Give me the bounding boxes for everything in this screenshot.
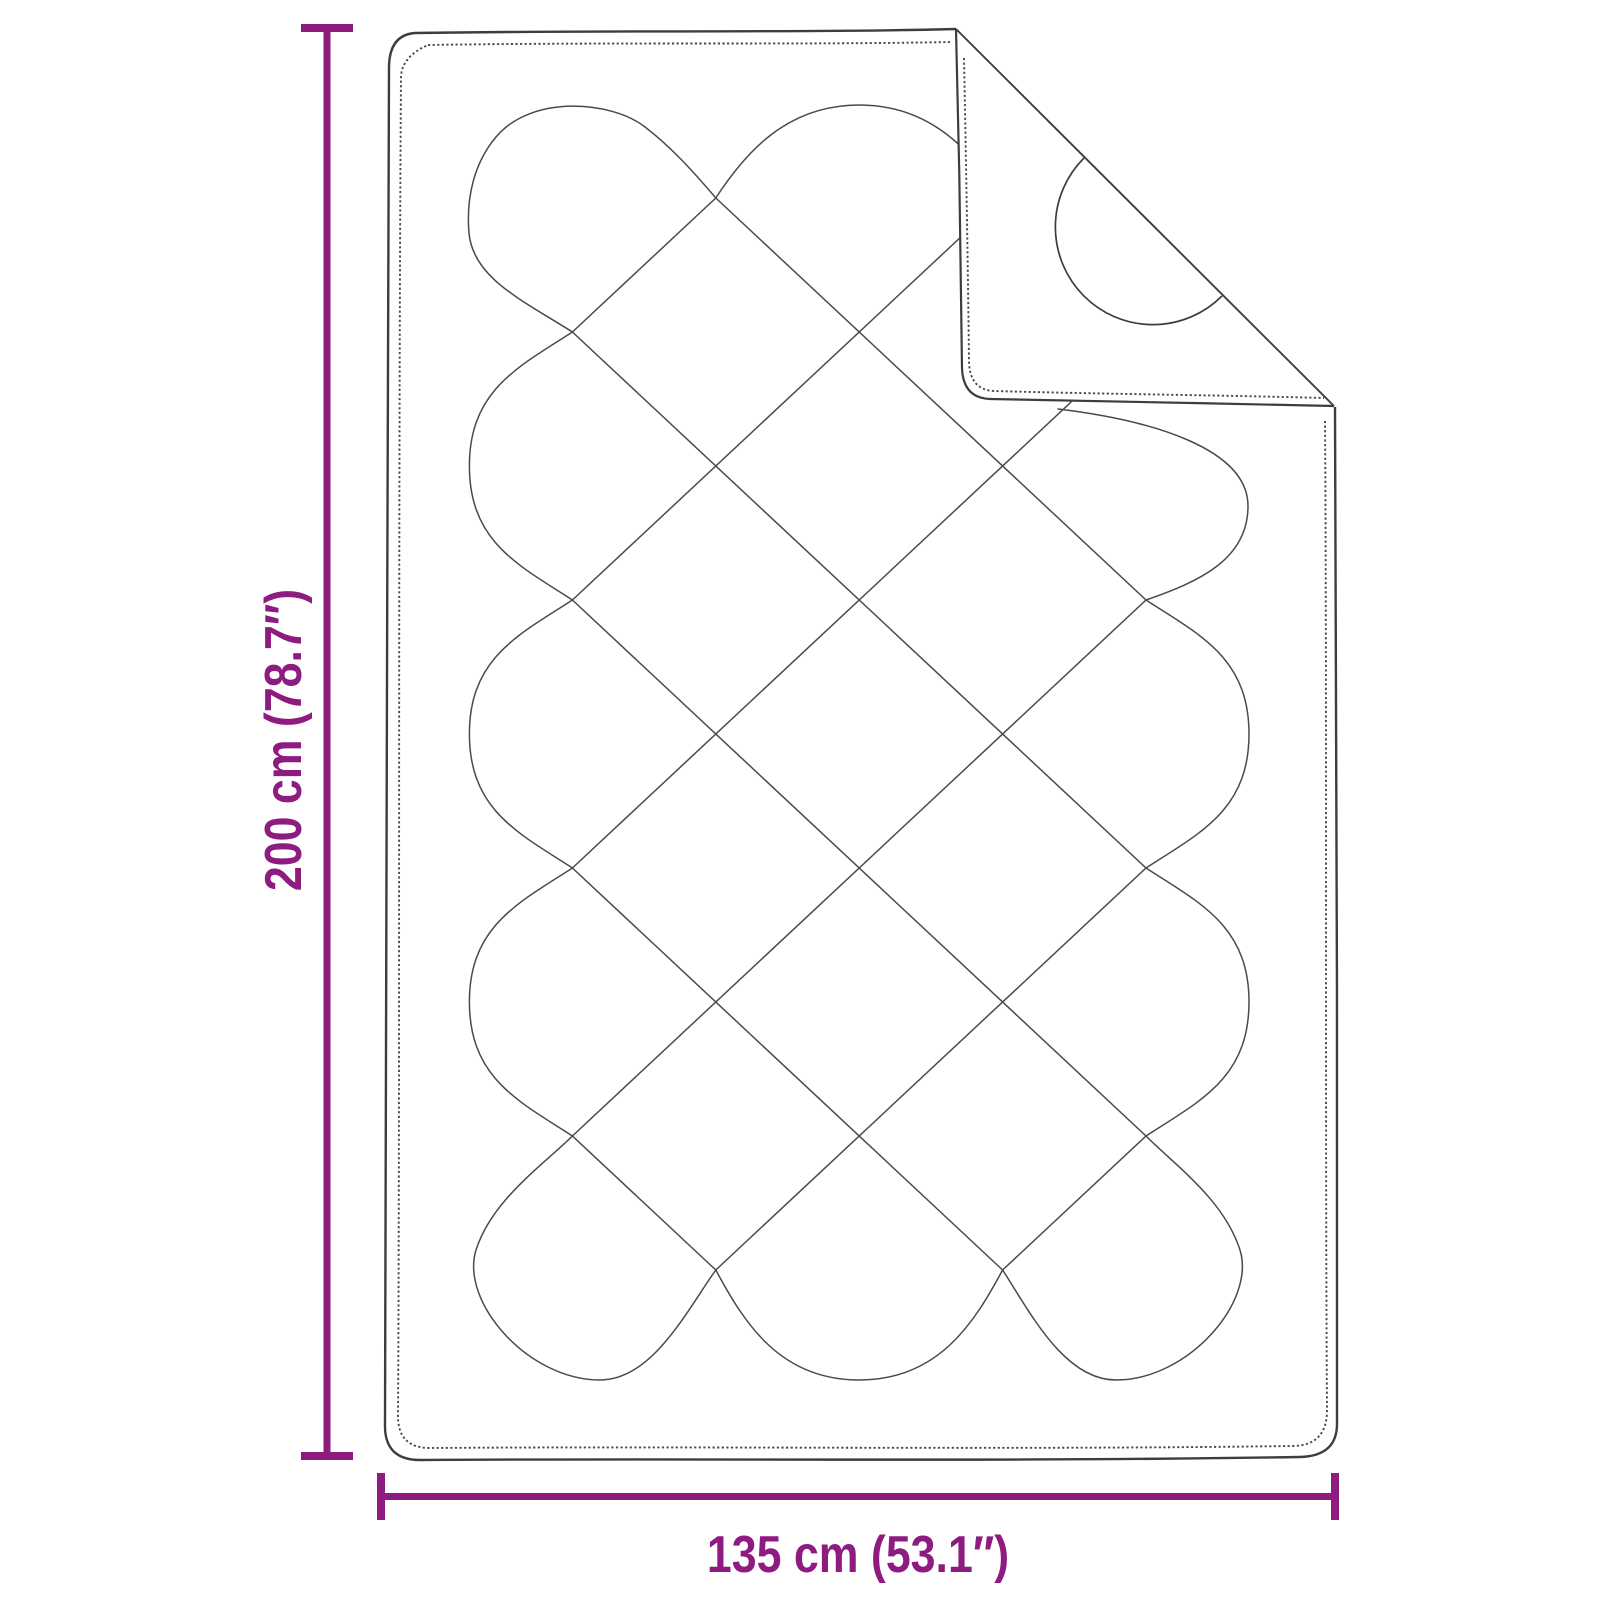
svg-text:135 cm (53.1″): 135 cm (53.1″) xyxy=(707,1526,1009,1584)
svg-text:200 cm (78.7″): 200 cm (78.7″) xyxy=(255,589,313,891)
